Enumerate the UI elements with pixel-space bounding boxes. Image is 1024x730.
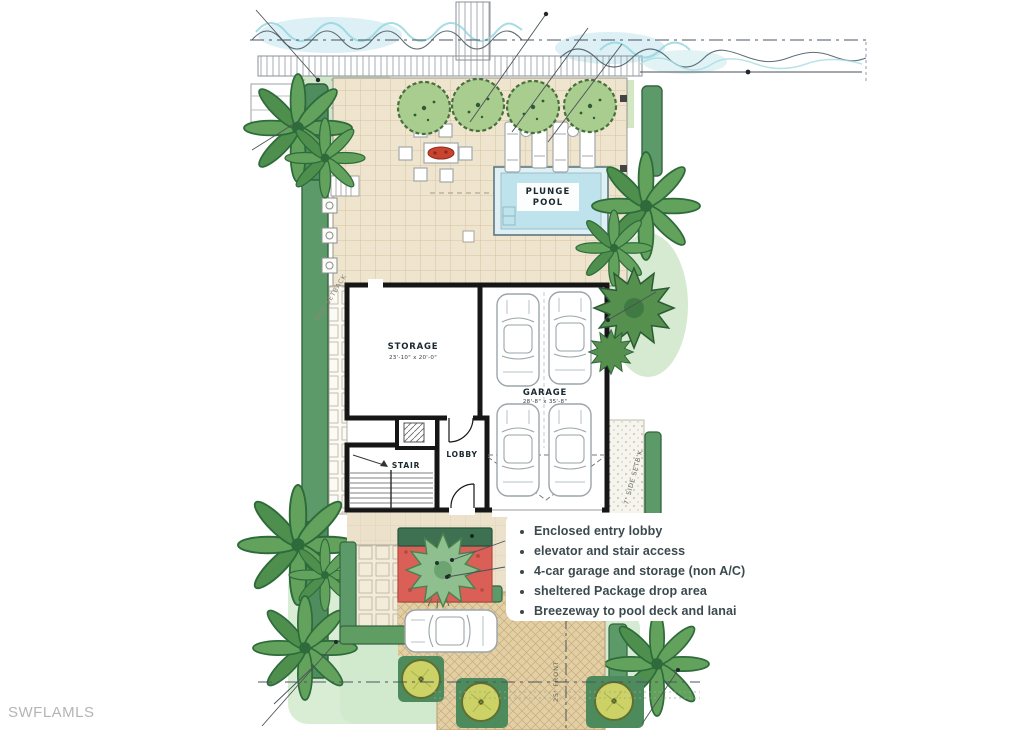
shrub-icon [462, 683, 500, 721]
lanai-column [620, 95, 627, 102]
round-tree-icon [564, 80, 616, 132]
storage-dims: 23'-10" x 20'-0" [389, 355, 437, 361]
chaise-lounge [505, 122, 520, 172]
entry-court [398, 528, 492, 608]
driveway-car [405, 610, 497, 652]
watermark: SWFLAMLS [8, 704, 95, 721]
site-plan-page: PLUNGE POOL [0, 0, 1024, 730]
shrub-icon [595, 682, 633, 720]
garage-dims: 28'-8" x 35'-8" [523, 399, 567, 405]
chaise-lounge [553, 122, 568, 172]
garage-car [549, 404, 591, 496]
fire-bowl [428, 147, 454, 159]
stair-label: STAIR [392, 461, 420, 470]
annotation-item: elevator and stair access [534, 541, 764, 561]
garage-car [497, 294, 539, 386]
round-tree-icon [507, 81, 559, 133]
annotation-item: sheltered Package drop area [534, 581, 764, 601]
lobby-label: LOBBY [446, 450, 477, 459]
lobby-room [437, 418, 487, 510]
garage-label: GARAGE [523, 388, 567, 398]
annotation-item: Enclosed entry lobby [534, 521, 764, 541]
outdoor-fixtures [322, 198, 337, 273]
pool-label-line1: PLUNGE [526, 187, 571, 197]
palm-tree-icon [285, 118, 365, 198]
lanai-column [620, 165, 627, 172]
garage-car [497, 404, 539, 496]
annotation-item: Breezeway to pool deck and lanai [534, 601, 764, 621]
pool-label-line2: POOL [533, 198, 564, 208]
annotation-card: Enclosed entry lobby elevator and stair … [506, 513, 772, 621]
annotation-list: Enclosed entry lobby elevator and stair … [510, 521, 764, 621]
garage-car [549, 292, 591, 384]
storage-label: STORAGE [388, 342, 439, 352]
building-floorplan: STORAGE 23'-10" x 20'-0" GARAGE 28'-8" x… [347, 279, 607, 517]
stair-room [347, 445, 437, 510]
annotation-item: 4-car garage and storage (non A/C) [534, 561, 764, 581]
front-setback-label: 25' FRONT [552, 660, 560, 702]
round-tree-icon [452, 79, 504, 131]
round-tree-icon [398, 82, 450, 134]
